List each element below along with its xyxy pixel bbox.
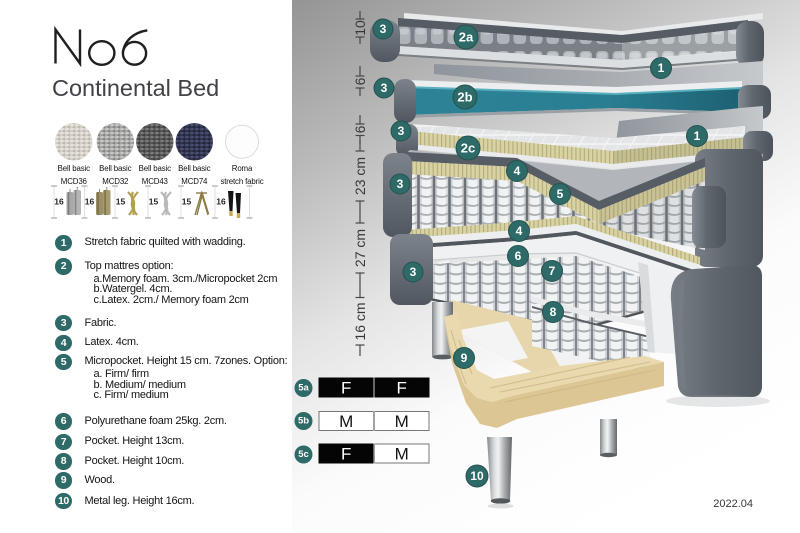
svg-text:16 cm: 16 cm xyxy=(352,302,368,340)
svg-text:8: 8 xyxy=(550,305,557,319)
svg-text:1: 1 xyxy=(694,129,701,143)
svg-text:9: 9 xyxy=(461,351,468,365)
svg-text:7: 7 xyxy=(549,264,556,278)
svg-text:10: 10 xyxy=(352,20,368,36)
svg-text:4: 4 xyxy=(514,164,521,178)
svg-text:1: 1 xyxy=(658,61,665,75)
svg-text:3: 3 xyxy=(398,124,405,138)
svg-text:5c: 5c xyxy=(298,449,309,460)
svg-text:3: 3 xyxy=(410,265,417,279)
svg-text:23 cm: 23 cm xyxy=(352,157,368,195)
svg-text:5b: 5b xyxy=(298,416,309,427)
svg-text:5: 5 xyxy=(557,187,564,201)
svg-text:5a: 5a xyxy=(298,383,309,394)
svg-text:2b: 2b xyxy=(457,90,472,105)
svg-text:3: 3 xyxy=(380,22,387,36)
svg-text:M: M xyxy=(395,412,409,431)
svg-text:3: 3 xyxy=(397,177,404,191)
svg-text:6: 6 xyxy=(352,77,368,85)
svg-text:2a: 2a xyxy=(459,30,474,45)
svg-text:10: 10 xyxy=(470,469,484,483)
svg-text:M: M xyxy=(339,412,353,431)
svg-text:2022.04: 2022.04 xyxy=(713,498,753,510)
svg-text:6: 6 xyxy=(515,249,522,263)
svg-text:F: F xyxy=(341,445,351,464)
svg-text:M: M xyxy=(395,445,409,464)
svg-text:3: 3 xyxy=(381,81,388,95)
svg-text:F: F xyxy=(341,379,351,398)
svg-text:27 cm: 27 cm xyxy=(352,229,368,267)
svg-text:F: F xyxy=(397,379,407,398)
svg-text:2c: 2c xyxy=(461,141,475,156)
svg-text:4: 4 xyxy=(516,224,523,238)
svg-text:6: 6 xyxy=(352,125,368,133)
